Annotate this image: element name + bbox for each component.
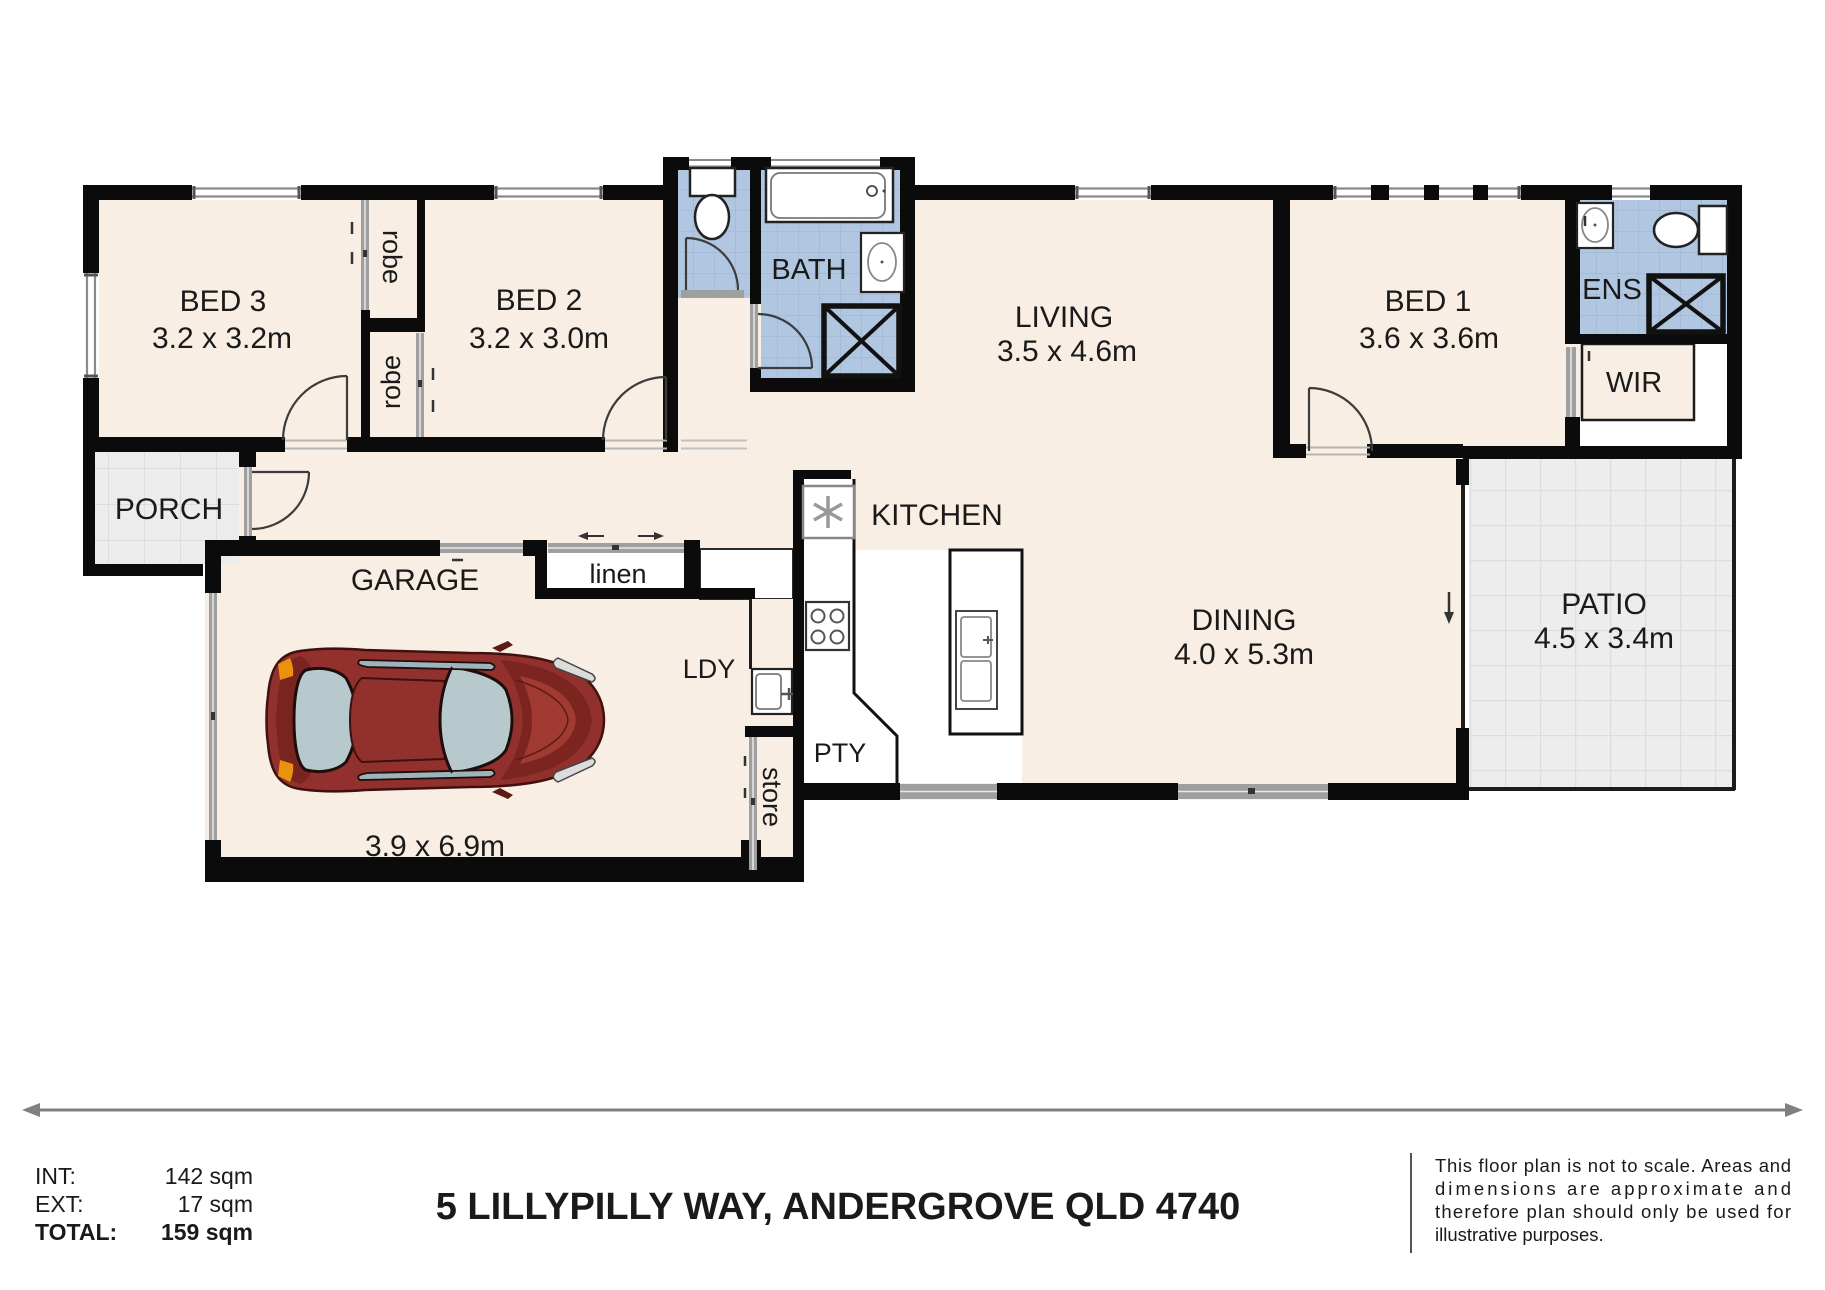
svg-text:LDY: LDY (683, 654, 736, 684)
svg-text:PTY: PTY (814, 738, 867, 768)
svg-text:linen: linen (589, 559, 646, 589)
svg-text:EXT:: EXT: (35, 1191, 84, 1217)
svg-text:TOTAL:: TOTAL: (35, 1219, 117, 1245)
svg-text:4.5 x 3.4m: 4.5 x 3.4m (1534, 622, 1674, 655)
svg-text:3.9 x 6.9m: 3.9 x 6.9m (365, 830, 505, 863)
svg-text:WIR: WIR (1606, 367, 1662, 399)
svg-text:3.2 x 3.2m: 3.2 x 3.2m (152, 322, 292, 355)
svg-text:LIVING: LIVING (1015, 301, 1113, 334)
svg-text:therefore plan should only be: therefore plan should only be used for (1435, 1201, 1791, 1222)
svg-text:4.0 x 5.3m: 4.0 x 5.3m (1174, 638, 1314, 671)
svg-text:PORCH: PORCH (115, 493, 223, 526)
svg-text:ENS: ENS (1582, 274, 1642, 306)
svg-text:3.5 x 4.6m: 3.5 x 4.6m (997, 335, 1137, 368)
svg-text:3.2 x 3.0m: 3.2 x 3.0m (469, 322, 609, 355)
svg-text:BATH: BATH (771, 254, 846, 286)
svg-text:17 sqm: 17 sqm (178, 1191, 253, 1217)
svg-text:142 sqm: 142 sqm (165, 1163, 253, 1189)
svg-text:5 LILLYPILLY WAY, ANDERGROVE Q: 5 LILLYPILLY WAY, ANDERGROVE QLD 4740 (436, 1186, 1241, 1228)
svg-text:INT:: INT: (35, 1163, 76, 1189)
svg-text:KITCHEN: KITCHEN (871, 499, 1003, 532)
svg-text:GARAGE: GARAGE (351, 564, 479, 597)
svg-text:This floor plan is not to scal: This floor plan is not to scale. Areas a… (1435, 1155, 1791, 1176)
svg-text:BED 3: BED 3 (180, 285, 267, 318)
svg-text:dimensions are approximate and: dimensions are approximate and (1435, 1178, 1791, 1199)
svg-text:illustrative purposes.: illustrative purposes. (1435, 1224, 1604, 1245)
svg-text:DINING: DINING (1192, 604, 1297, 637)
svg-text:BED 1: BED 1 (1385, 285, 1472, 318)
svg-text:BED 2: BED 2 (496, 284, 583, 317)
svg-text:robe: robe (377, 230, 407, 284)
svg-text:3.6 x 3.6m: 3.6 x 3.6m (1359, 322, 1499, 355)
svg-text:robe: robe (376, 355, 406, 409)
svg-text:PATIO: PATIO (1561, 588, 1647, 621)
svg-text:store: store (757, 767, 787, 827)
svg-text:159 sqm: 159 sqm (161, 1219, 253, 1245)
